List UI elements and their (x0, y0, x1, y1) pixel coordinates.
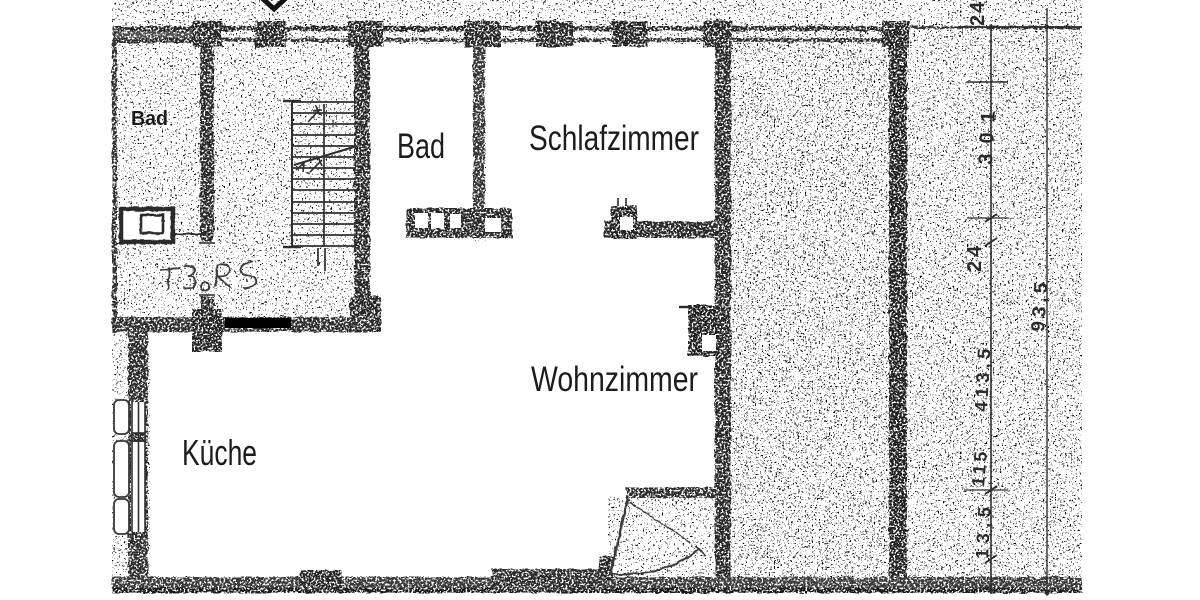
svg-text:413,5: 413,5 (971, 344, 995, 413)
svg-text:115: 115 (968, 448, 991, 488)
svg-text:Schlafzimmer: Schlafzimmer (529, 119, 699, 158)
svg-text:Bad: Bad (131, 108, 168, 130)
svg-text:Wohnzimmer: Wohnzimmer (531, 360, 698, 399)
svg-text:24: 24 (967, 0, 989, 26)
svg-text:301: 301 (975, 101, 1000, 165)
svg-text:Bad: Bad (397, 127, 445, 166)
svg-text:24: 24 (964, 242, 986, 272)
svg-text:Küche: Küche (182, 432, 257, 473)
svg-text:93,5: 93,5 (1028, 278, 1053, 332)
svg-text:13,5: 13,5 (972, 501, 995, 559)
